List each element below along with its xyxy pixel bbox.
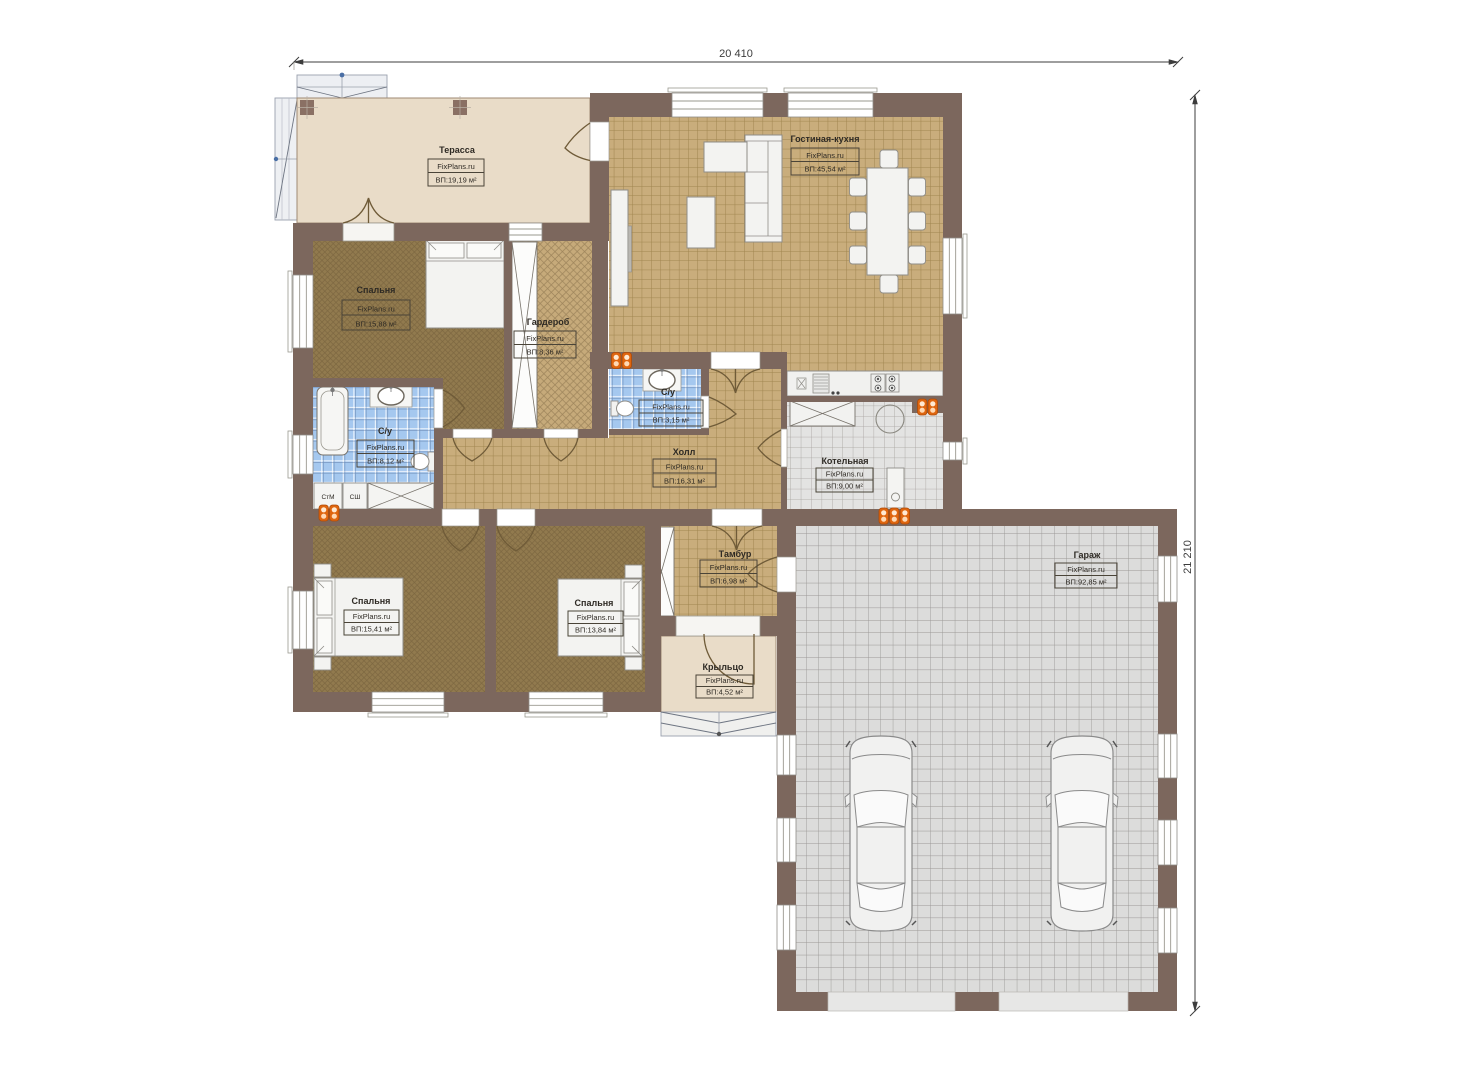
svg-text:С/у: С/у [661,387,675,397]
svg-text:Спальня: Спальня [575,598,614,608]
svg-text:20 410: 20 410 [719,48,753,60]
svg-text:ВП:8,12 м²: ВП:8,12 м² [367,457,404,466]
svg-text:ВП:8,36 м²: ВП:8,36 м² [527,348,564,357]
svg-text:FixPlans.ru: FixPlans.ru [353,612,391,621]
svg-text:Спальня: Спальня [352,596,391,606]
svg-text:ВП:4,52 м²: ВП:4,52 м² [706,688,743,697]
svg-text:ВП:45,54 м²: ВП:45,54 м² [805,165,846,174]
svg-text:FixPlans.ru: FixPlans.ru [357,305,395,314]
svg-text:Спальня: Спальня [357,285,396,295]
svg-text:FixPlans.ru: FixPlans.ru [826,470,864,479]
svg-text:ВП:6,98 м²: ВП:6,98 м² [710,577,747,586]
svg-text:FixPlans.ru: FixPlans.ru [577,613,615,622]
svg-text:FixPlans.ru: FixPlans.ru [367,443,405,452]
svg-text:Котельная: Котельная [821,456,868,466]
svg-text:FixPlans.ru: FixPlans.ru [706,676,744,685]
svg-text:ВП:15,41 м²: ВП:15,41 м² [351,625,392,634]
svg-text:Гараж: Гараж [1074,550,1101,560]
svg-text:21 210: 21 210 [1182,540,1194,574]
svg-text:ВП:15,88 м²: ВП:15,88 м² [356,320,397,329]
svg-text:ВП:16,31 м²: ВП:16,31 м² [664,477,705,486]
svg-text:С/у: С/у [378,426,392,436]
svg-text:ВП:3,15 м²: ВП:3,15 м² [653,416,690,425]
svg-text:Крыльцо: Крыльцо [703,662,744,672]
svg-text:Холл: Холл [673,447,696,457]
svg-text:ВП:19,19 м²: ВП:19,19 м² [436,176,477,185]
svg-text:FixPlans.ru: FixPlans.ru [806,151,844,160]
svg-text:FixPlans.ru: FixPlans.ru [710,563,748,572]
svg-text:СШ: СШ [350,494,361,501]
svg-text:ВП:9,00 м²: ВП:9,00 м² [826,482,863,491]
svg-text:ВП:13,84 м²: ВП:13,84 м² [575,626,616,635]
svg-text:Гостиная-кухня: Гостиная-кухня [791,134,860,144]
svg-text:Тамбур: Тамбур [719,549,752,559]
svg-text:FixPlans.ru: FixPlans.ru [526,334,564,343]
svg-text:FixPlans.ru: FixPlans.ru [652,403,690,412]
svg-text:FixPlans.ru: FixPlans.ru [1067,565,1105,574]
svg-text:FixPlans.ru: FixPlans.ru [666,463,704,472]
svg-text:FixPlans.ru: FixPlans.ru [437,162,475,171]
svg-text:СтМ: СтМ [321,494,334,501]
svg-text:ВП:92,85 м²: ВП:92,85 м² [1066,578,1107,587]
svg-text:Гардероб: Гардероб [527,317,570,327]
svg-text:Терасса: Терасса [439,145,476,155]
